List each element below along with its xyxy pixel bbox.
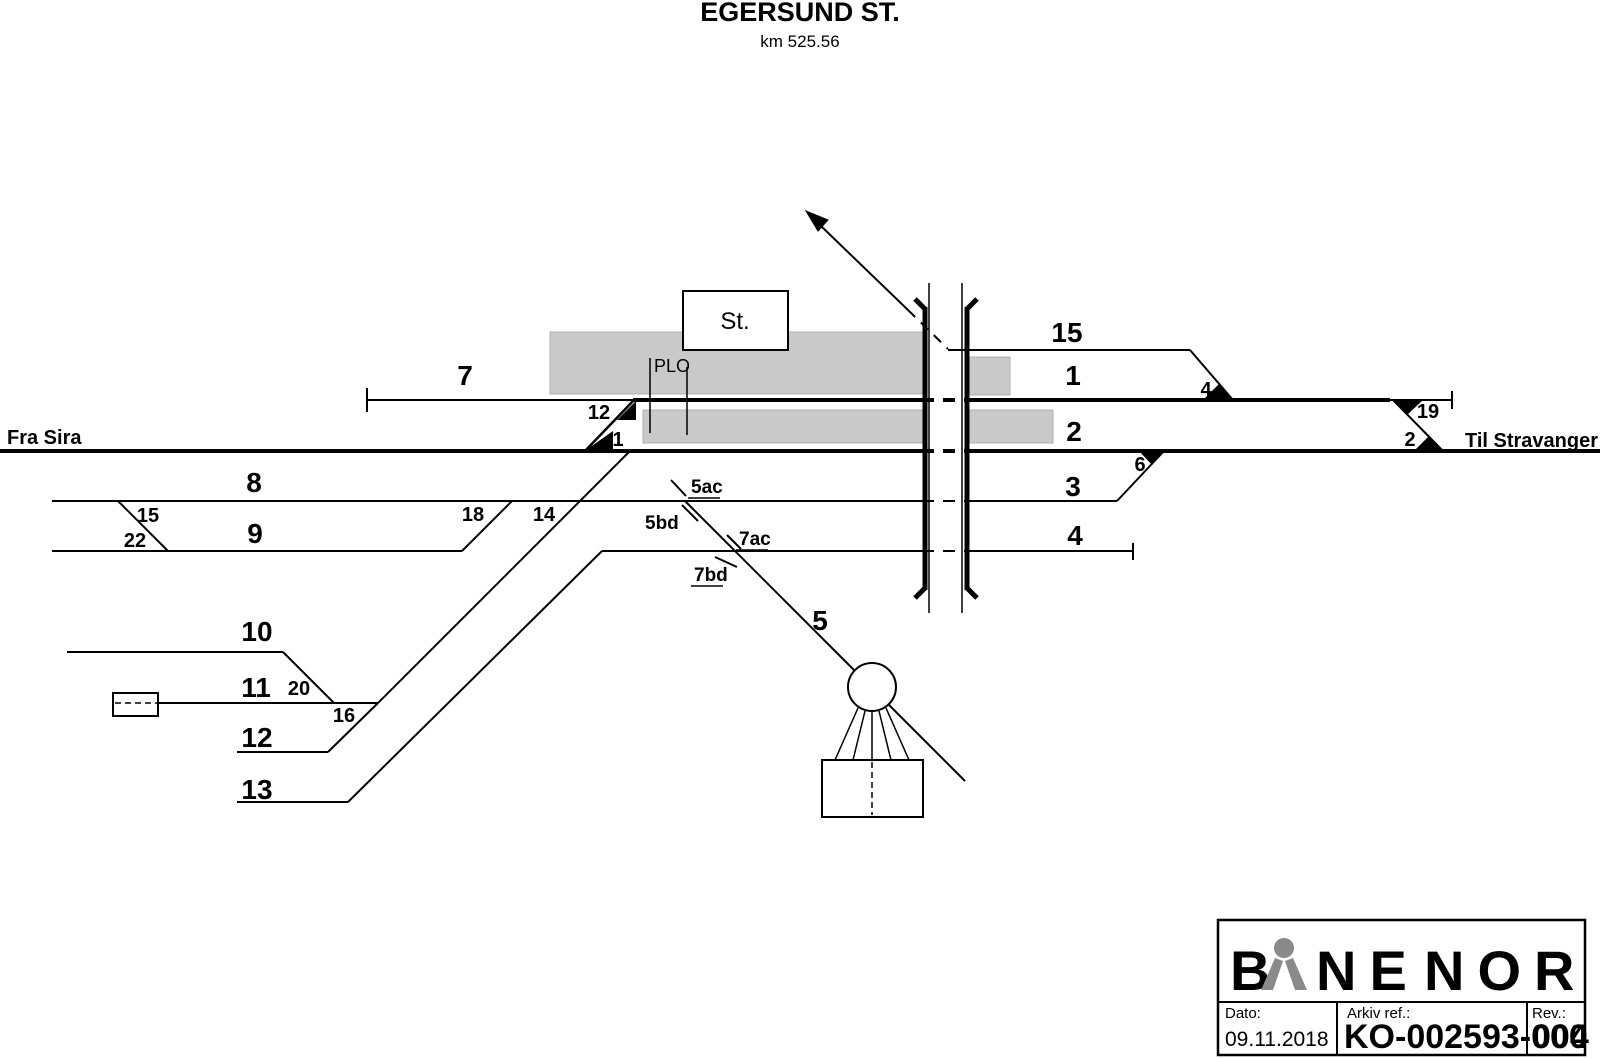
track-label-1: 1: [1065, 360, 1081, 391]
platform-upper-right: [965, 357, 1010, 395]
logo-letters-nor: NOR: [1424, 939, 1587, 1002]
switch-label-15: 15: [137, 505, 159, 527]
yard-diagonals: [348, 399, 635, 802]
dato-value: 09.11.2018: [1225, 1028, 1329, 1051]
track-label-13: 13: [241, 774, 272, 805]
track-3-line: [52, 451, 1164, 501]
platform-middle-left: [643, 410, 923, 443]
marker-label-5ac: 5ac: [691, 477, 723, 498]
track-label-9: 9: [247, 518, 263, 549]
switch-label-1: 1: [612, 429, 623, 451]
station-box-label: St.: [720, 308, 749, 335]
track-diagram: EGERSUND ST. km 525.56 Fra Sira Til Stra…: [0, 0, 1600, 1058]
page-title: EGERSUND ST.: [700, 0, 900, 27]
marker-label-7ac: 7ac: [739, 529, 771, 550]
switch-label-18: 18: [462, 504, 484, 526]
engine-shed: [822, 760, 923, 817]
switch-label-6: 6: [1134, 454, 1145, 476]
wedge-switch-12: [617, 401, 636, 420]
dato-label: Dato:: [1225, 1005, 1261, 1022]
endpoint-right-label: Til Stravanger: [1465, 430, 1598, 452]
logo-letters-ne: NE: [1316, 939, 1420, 1002]
track-label-12: 12: [241, 722, 272, 753]
track-label-5: 5: [812, 605, 828, 636]
rev-value: 004: [1532, 1018, 1589, 1056]
track-label-7: 7: [457, 360, 473, 391]
turntable: [848, 663, 896, 711]
platforms: [550, 332, 1053, 443]
switch-label-2: 2: [1404, 429, 1415, 451]
switch-label-19: 19: [1417, 401, 1439, 423]
platform-middle-right: [965, 410, 1053, 443]
marker-label-5bd: 5bd: [645, 513, 679, 534]
track11-building: [113, 693, 158, 716]
page-subtitle-km: km 525.56: [760, 32, 839, 51]
shed-fan-tracks: [835, 708, 909, 760]
track-label-3: 3: [1065, 471, 1081, 502]
switch-label-22: 22: [124, 530, 146, 552]
switch-label-16: 16: [333, 705, 355, 727]
track-label-2: 2: [1066, 416, 1082, 447]
switch-label-20: 20: [288, 678, 310, 700]
track-label-4: 4: [1067, 520, 1083, 551]
plo-label: PLO: [654, 356, 690, 376]
track-label-8: 8: [246, 467, 262, 498]
arrow-head: [806, 211, 828, 231]
track-label-15: 15: [1051, 317, 1082, 348]
track-label-11: 11: [241, 672, 271, 703]
switch-label-12: 12: [588, 402, 610, 424]
switch-label-14: 14: [533, 504, 556, 526]
road-overpass: [915, 283, 977, 613]
track-9-line: [52, 501, 512, 551]
marker-label-7bd: 7bd: [694, 565, 728, 586]
track-label-10: 10: [241, 616, 272, 647]
track-4-line: [602, 543, 1133, 560]
title-block: B NE NOR Dato: 09.11.2018 Arkiv ref.: KO…: [1218, 920, 1589, 1056]
endpoint-left-label: Fra Sira: [7, 427, 82, 449]
yard-tracks: [67, 652, 378, 802]
switch-label-4: 4: [1200, 379, 1212, 401]
